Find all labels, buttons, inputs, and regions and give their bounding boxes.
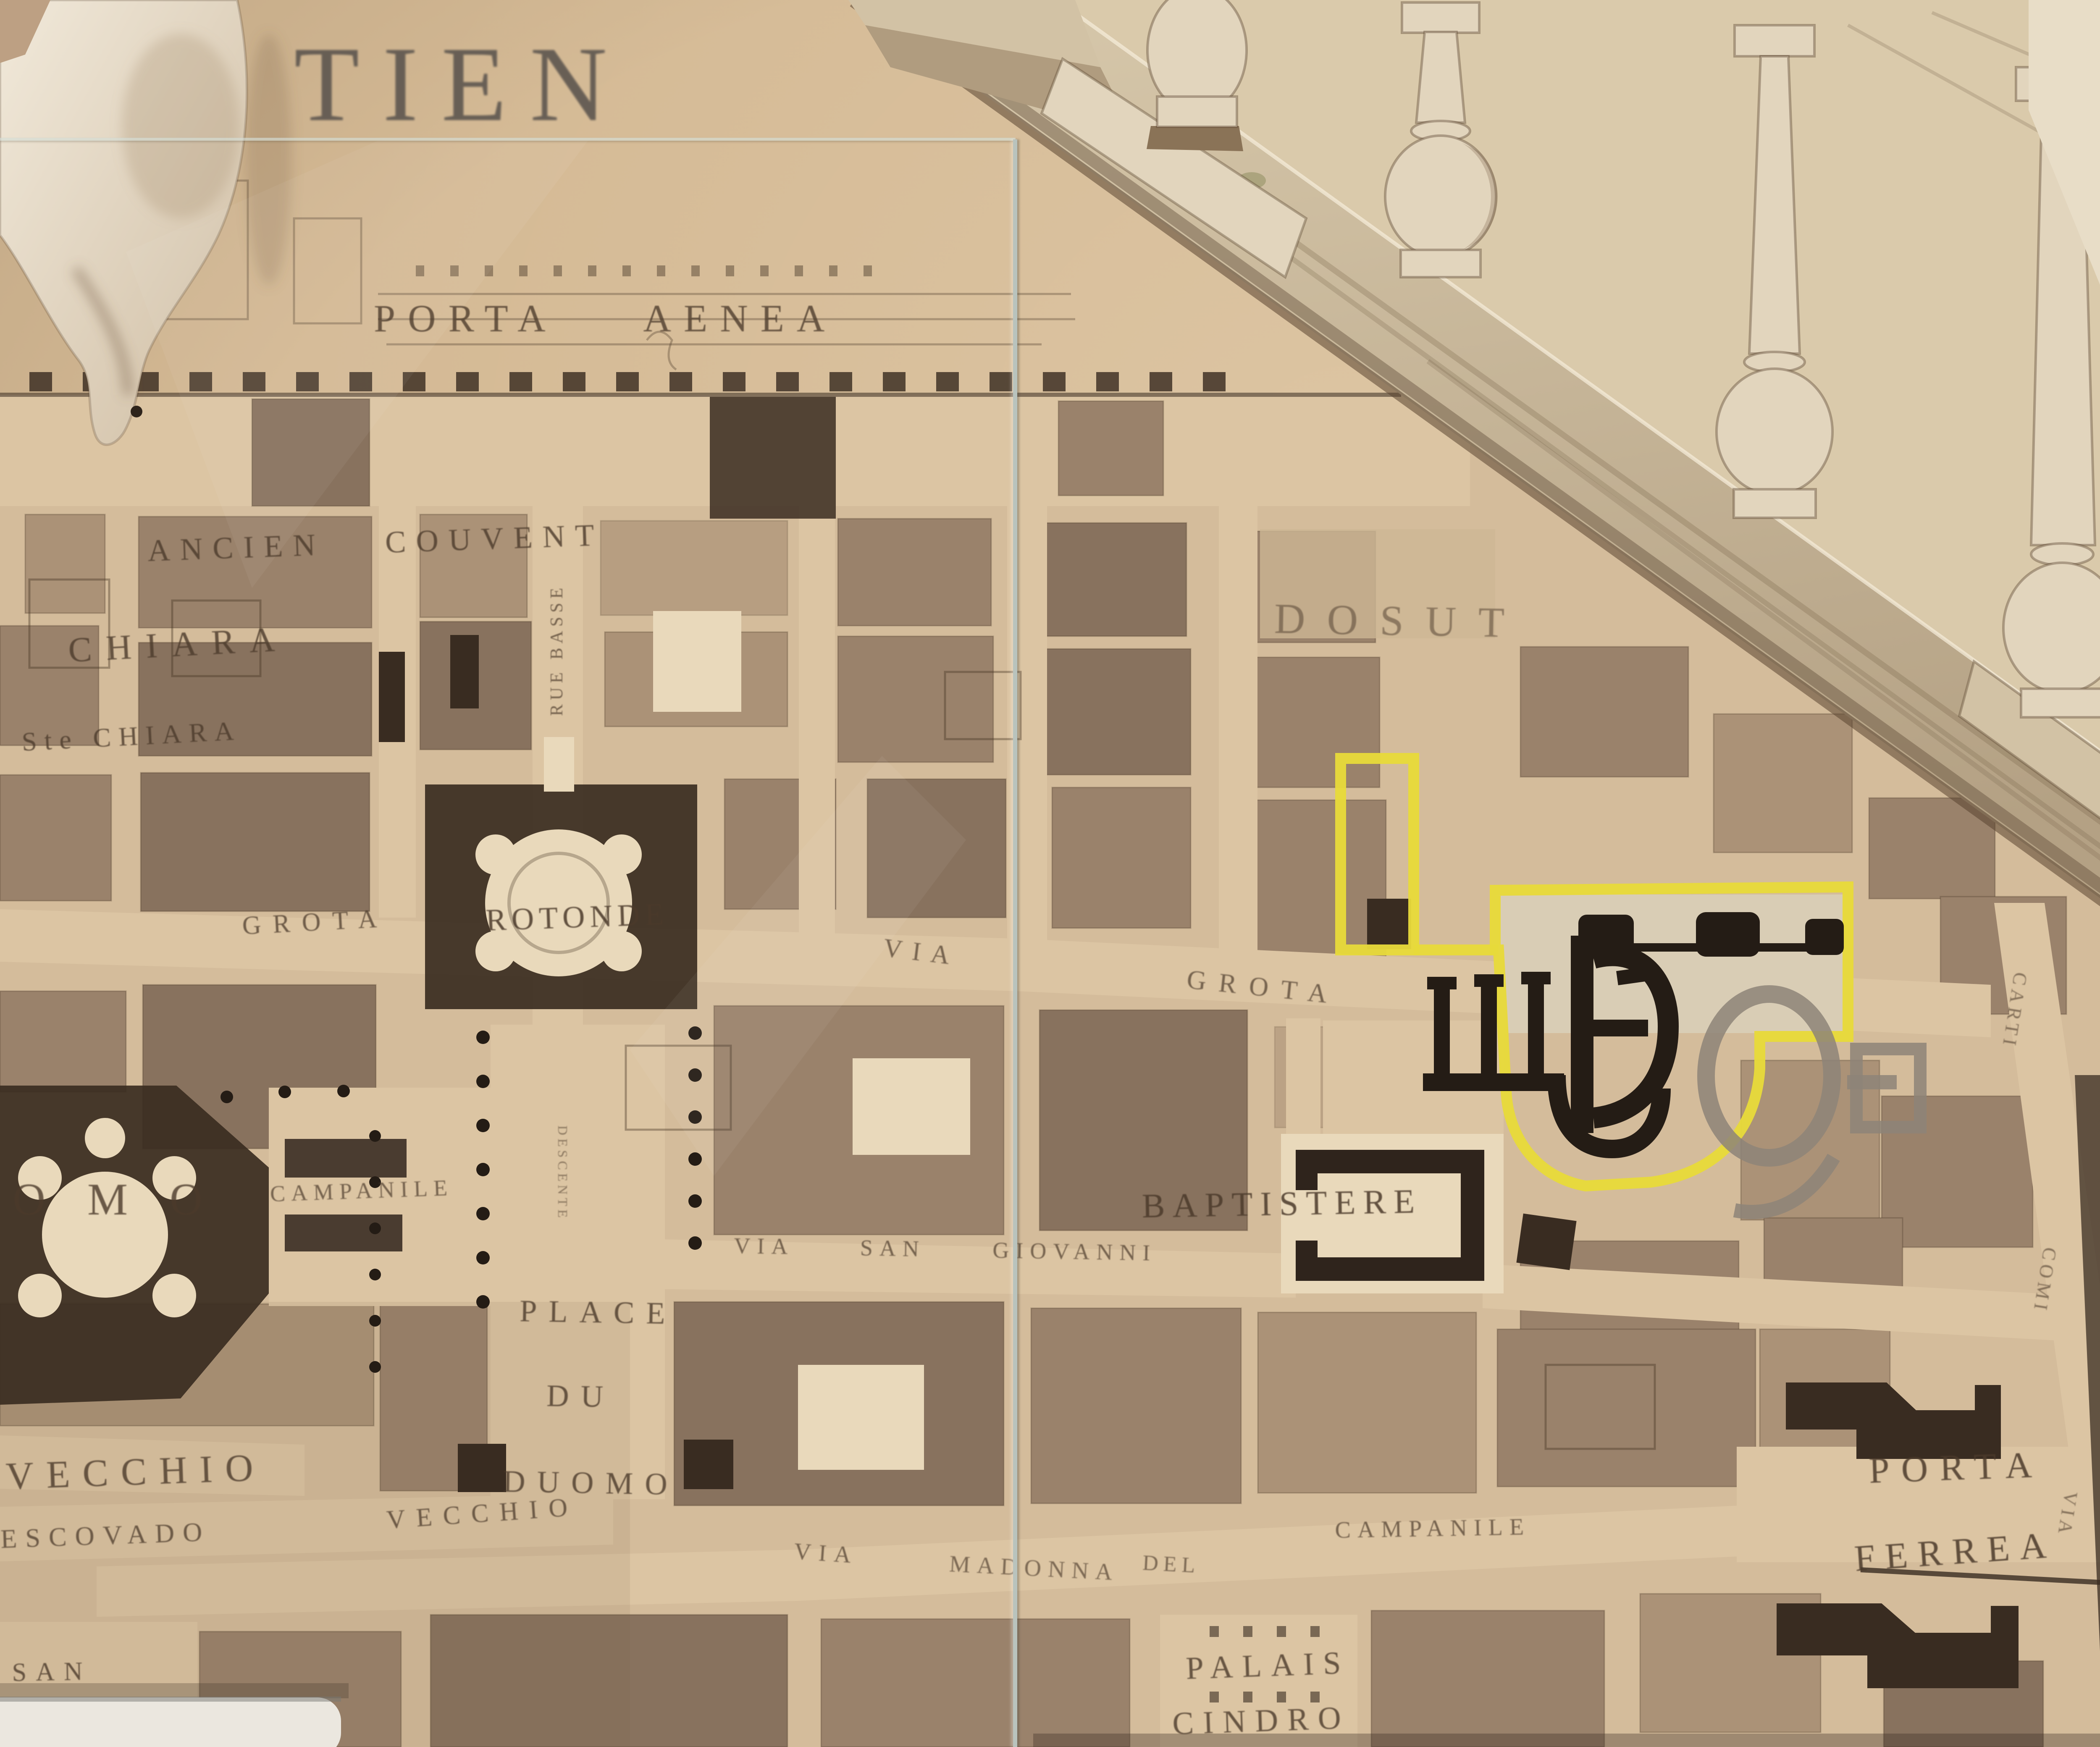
deco-mark xyxy=(669,372,692,391)
deco-mark xyxy=(456,372,479,391)
column-dot xyxy=(476,1163,490,1176)
deco-mark xyxy=(554,265,562,276)
deco-mark xyxy=(990,372,1012,391)
column-dot xyxy=(476,1119,490,1132)
column-dot xyxy=(476,1031,490,1044)
column-dot xyxy=(369,1269,381,1280)
deco-mark xyxy=(1096,372,1119,391)
column-dot xyxy=(369,1130,381,1142)
column-dot xyxy=(337,1085,350,1097)
deco-mark xyxy=(509,372,532,391)
deco-mark xyxy=(1043,372,1066,391)
column-dot xyxy=(369,1222,381,1234)
deco-mark xyxy=(1203,372,1226,391)
deco-mark xyxy=(1277,1692,1286,1702)
deco-mark xyxy=(1243,1626,1252,1637)
deco-mark xyxy=(1150,372,1172,391)
deco-mark xyxy=(563,372,585,391)
deco-mark xyxy=(1243,1692,1252,1702)
deco-mark xyxy=(519,265,528,276)
deco-mark xyxy=(1277,1626,1286,1637)
deco-mark xyxy=(657,265,665,276)
campanile-pier-north xyxy=(285,1139,407,1178)
deco-mark xyxy=(616,372,639,391)
deco-mark xyxy=(864,265,872,276)
deco-mark xyxy=(795,265,803,276)
glass-seam xyxy=(1013,139,1017,1747)
column-dot xyxy=(220,1091,233,1103)
column-dot xyxy=(278,1086,291,1098)
column-dot xyxy=(476,1251,490,1264)
deco-mark xyxy=(760,265,769,276)
photo-stage: TIENPORTA AENEAANCIEN COUVENTCHIARASte C… xyxy=(0,0,2100,1747)
scene-graphics xyxy=(0,0,2100,1747)
deco-mark xyxy=(622,265,631,276)
deco-mark xyxy=(1210,1692,1219,1702)
deco-mark xyxy=(829,372,852,391)
deco-mark xyxy=(723,372,745,391)
deco-mark xyxy=(1210,1626,1219,1637)
column-dot xyxy=(476,1207,490,1220)
column-dot xyxy=(369,1361,381,1373)
column-dot xyxy=(476,1295,490,1309)
deco-mark xyxy=(883,372,906,391)
glass-top-edge xyxy=(0,138,1016,141)
campanile-pier-south xyxy=(285,1215,402,1251)
column-dot xyxy=(369,1315,381,1327)
deco-mark xyxy=(1310,1626,1320,1637)
deco-mark xyxy=(776,372,799,391)
deco-mark xyxy=(29,372,52,391)
deco-mark xyxy=(1310,1692,1320,1702)
deco-mark xyxy=(936,372,959,391)
column-dot xyxy=(688,1236,702,1250)
column-dot xyxy=(369,1176,381,1188)
deco-mark xyxy=(588,265,596,276)
column-dot xyxy=(688,1194,702,1208)
deco-mark xyxy=(726,265,734,276)
ledge xyxy=(0,1683,349,1747)
column-dot xyxy=(476,1075,490,1088)
deco-mark xyxy=(829,265,837,276)
deco-mark xyxy=(691,265,700,276)
